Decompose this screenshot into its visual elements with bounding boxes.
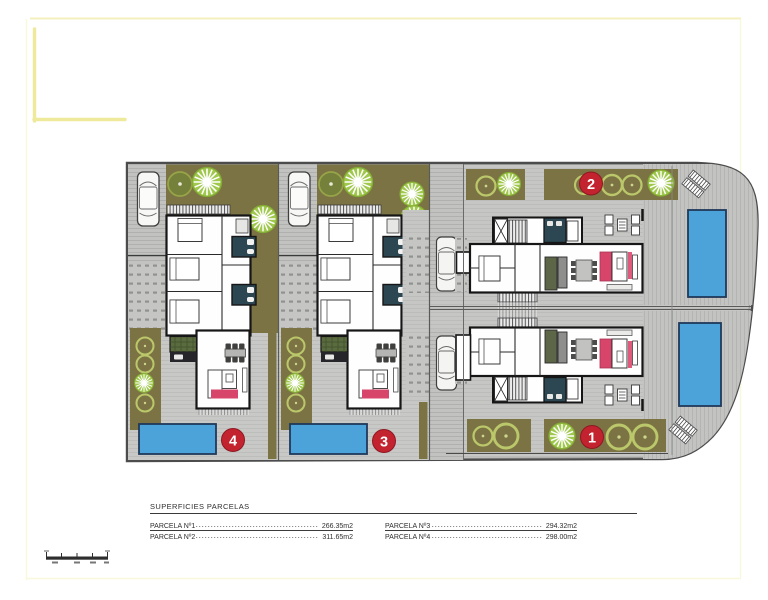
svg-text:1: 1 — [588, 431, 596, 447]
svg-text:PARCELA Nº3: PARCELA Nº3 — [385, 523, 430, 530]
svg-text:294.32m2: 294.32m2 — [546, 523, 577, 530]
svg-text:298.00m2: 298.00m2 — [546, 534, 577, 541]
svg-text:2: 2 — [587, 177, 595, 193]
svg-text:PARCELA Nº4: PARCELA Nº4 — [385, 534, 430, 541]
svg-text:PARCELA Nº2: PARCELA Nº2 — [150, 534, 195, 541]
svg-text:266.35m2: 266.35m2 — [322, 523, 353, 530]
svg-text:4: 4 — [229, 434, 237, 450]
svg-text:311.65m2: 311.65m2 — [322, 534, 353, 541]
svg-text:3: 3 — [380, 435, 388, 451]
svg-text:SUPERFICIES PARCELAS: SUPERFICIES PARCELAS — [150, 502, 250, 511]
svg-text:PARCELA Nº1: PARCELA Nº1 — [150, 523, 195, 530]
